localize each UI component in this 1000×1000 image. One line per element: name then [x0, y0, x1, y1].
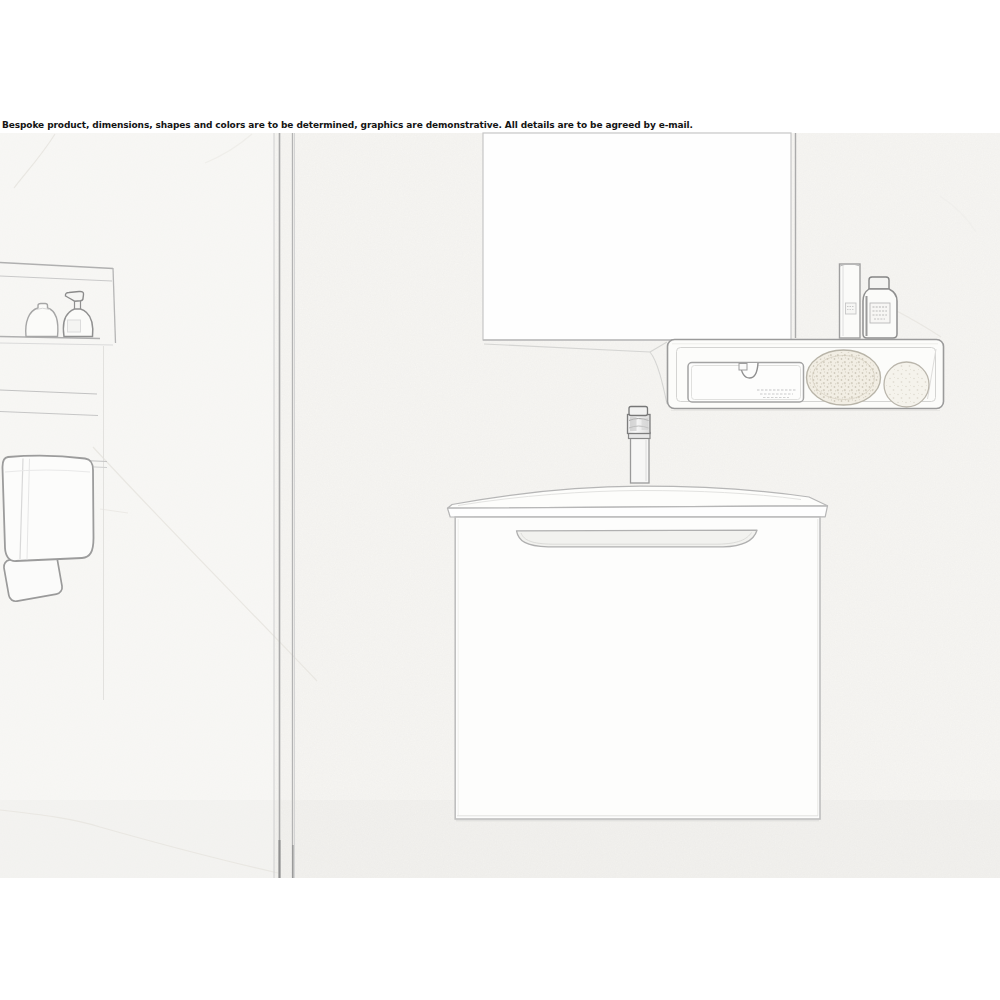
tissue-box: [688, 363, 804, 403]
product-image: Bespoke product, dimensions, shapes and …: [0, 0, 1000, 1000]
small-sponge: [884, 362, 929, 407]
shelf-tall-bottle: [840, 264, 861, 338]
drawer-handle-recess: [517, 530, 758, 547]
large-sponge: [807, 350, 881, 405]
mirror: [483, 133, 796, 340]
bathroom-sketch: [0, 0, 1000, 1000]
vanity-cabinet: [455, 517, 820, 821]
bath-towel: [2, 456, 93, 561]
